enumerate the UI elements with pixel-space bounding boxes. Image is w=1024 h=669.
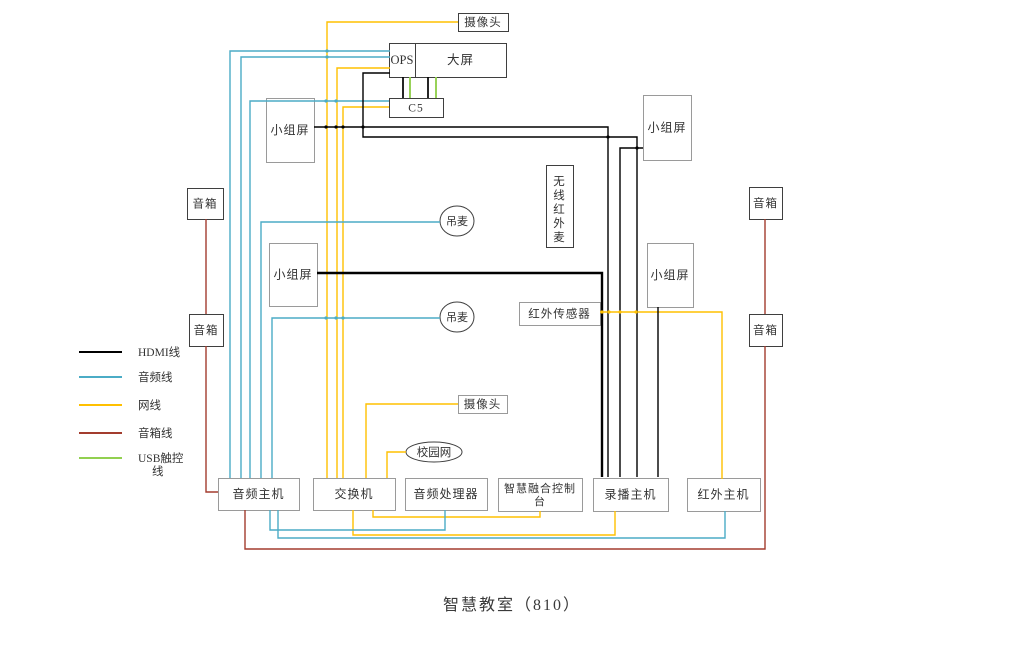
junction-dot — [361, 125, 364, 128]
node-speaker-right-bottom: 音箱 — [750, 315, 783, 347]
junction-dot — [325, 49, 328, 52]
legend-label-speaker: 音箱线 — [138, 426, 173, 440]
edge-audio-host-to-ir-host — [278, 510, 725, 538]
node-speaker-left-bottom: 音箱 — [190, 315, 224, 347]
edge-net-switch-to-recording-host — [353, 510, 615, 535]
node-label-network-switch: 交换机 — [334, 486, 373, 501]
node-audio-host: 音频主机 — [219, 479, 300, 511]
node-label-speaker-left-bottom: 音箱 — [194, 323, 219, 337]
edge-net-ir-sensor-to-ir-host — [600, 312, 722, 479]
legend-label-hdmi: HDMI线 — [138, 345, 181, 359]
node-network-switch: 交换机 — [314, 479, 396, 511]
node-label-main-screen: 大屏 — [447, 53, 474, 67]
junction-dot — [635, 146, 638, 149]
node-label-recording-host: 录播主机 — [604, 488, 656, 502]
node-ceiling-mic-1: 吊麦 — [440, 206, 474, 236]
legend-item-hdmi: HDMI线 — [79, 345, 181, 359]
junction-dot — [325, 55, 328, 58]
junction-dot — [334, 125, 337, 128]
junction-dot — [324, 99, 327, 102]
node-label-speaker-right-top: 音箱 — [753, 196, 778, 210]
legend-label-audio: 音频线 — [138, 370, 173, 384]
node-label-group-screen-right-mid: 小组屏 — [650, 268, 689, 282]
node-recording-host: 录播主机 — [594, 479, 669, 512]
diagram-title: 智慧教室（810） — [0, 591, 1024, 615]
legend-item-speaker: 音箱线 — [79, 426, 173, 440]
node-label-speaker-left-top: 音箱 — [193, 197, 218, 211]
node-speaker-left-top: 音箱 — [188, 189, 224, 220]
node-group-screen-left-top: 小组屏 — [267, 99, 315, 163]
node-ir-sensor: 红外传感器 — [520, 303, 601, 326]
node-label-audio-host: 音频主机 — [232, 486, 284, 501]
junction-dot — [341, 125, 344, 128]
node-ceiling-mic-2: 吊麦 — [440, 302, 474, 332]
node-wireless-ir-mic: 无线红外麦 — [547, 166, 574, 248]
junction-dot — [618, 310, 621, 313]
node-label-camera-top: 摄像头 — [464, 15, 502, 29]
node-label-camera-mid: 摄像头 — [464, 397, 502, 411]
node-group-screen-right-top: 小组屏 — [644, 96, 692, 161]
junction-dot — [334, 316, 337, 319]
node-label-campus-network: 校园网 — [417, 445, 452, 459]
node-label-ceiling-mic-1: 吊麦 — [446, 215, 468, 228]
legend-label-net: 网线 — [138, 398, 161, 412]
legend: HDMI线音频线网线音箱线USB触控线 — [79, 345, 184, 478]
edge-net-camera-top-to-switch — [327, 22, 458, 478]
legend-item-net: 网线 — [79, 398, 161, 412]
legend-item-usb: USB触控线 — [79, 451, 184, 478]
node-camera-top: 摄像头 — [459, 14, 509, 32]
edge-speaker-right-to-audio-host — [245, 346, 765, 549]
legend-label-usb: USB触控线 — [138, 451, 184, 478]
edge-net-campus-network-to-switch — [387, 452, 406, 478]
node-label-audio-processor: 音频处理器 — [413, 486, 478, 501]
node-label-ir-host: 红外主机 — [697, 487, 749, 502]
junction-dot — [634, 310, 637, 313]
node-label-speaker-right-bottom: 音箱 — [753, 323, 778, 337]
node-audio-processor: 音频处理器 — [406, 479, 488, 511]
diagram-canvas: 摄像头OPS大屏C5小组屏小组屏音箱音箱无线红外麦吊麦小组屏小组屏吊麦红外传感器… — [0, 0, 1024, 669]
node-ir-host: 红外主机 — [688, 479, 761, 512]
node-label-group-screen-left-top: 小组屏 — [270, 123, 309, 137]
edge-audio-host-to-processor — [270, 510, 445, 530]
junction-dot — [341, 316, 344, 319]
edge-hdmi-ops-to-recording-host — [363, 73, 637, 477]
node-fusion-console: 智慧融合控制台 — [499, 479, 583, 512]
node-label-wireless-ir-mic: 无线红外麦 — [553, 176, 566, 244]
node-label-ceiling-mic-2: 吊麦 — [446, 311, 468, 324]
edge-speaker-left-to-audio-host — [206, 346, 218, 492]
node-group-screen-left-mid: 小组屏 — [270, 244, 318, 307]
node-label-group-screen-right-top: 小组屏 — [647, 121, 686, 135]
junction-dot — [606, 135, 609, 138]
node-speaker-right-top: 音箱 — [750, 188, 783, 220]
junction-dot — [600, 310, 603, 313]
junction-dot — [607, 310, 610, 313]
node-group-screen-right-mid: 小组屏 — [648, 244, 694, 308]
smart-classroom-wiring-diagram: 摄像头OPS大屏C5小组屏小组屏音箱音箱无线红外麦吊麦小组屏小组屏吊麦红外传感器… — [0, 0, 1024, 669]
node-label-c5: C5 — [408, 103, 423, 115]
node-main-screen: OPS大屏 — [390, 44, 507, 78]
junction-dot — [324, 125, 327, 128]
legend-item-audio: 音频线 — [79, 370, 173, 384]
node-c5: C5 — [390, 99, 444, 118]
node-label-group-screen-left-mid: 小组屏 — [273, 268, 312, 282]
edge-net-camera-mid-to-switch — [366, 404, 458, 478]
junction-dot — [334, 99, 337, 102]
node-campus-network: 校园网 — [406, 442, 462, 462]
node-label-ops: OPS — [391, 53, 414, 67]
node-label-ir-sensor: 红外传感器 — [528, 307, 591, 321]
node-camera-mid: 摄像头 — [459, 396, 508, 414]
junction-dot — [324, 316, 327, 319]
